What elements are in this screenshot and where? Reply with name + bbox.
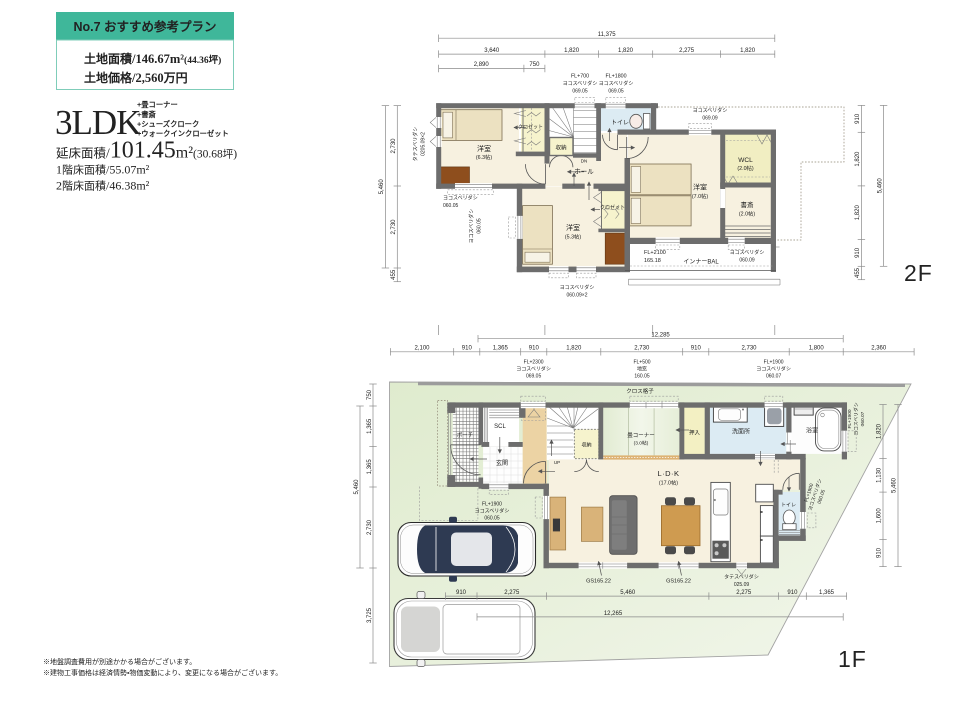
- svg-text:+畳コーナー: +畳コーナー: [137, 100, 178, 109]
- svg-text:910: 910: [456, 590, 467, 596]
- svg-text:ヨコスベリダシ: ヨコスベリダシ: [599, 80, 634, 87]
- svg-text:069.05: 069.05: [526, 373, 542, 379]
- svg-text:DN: DN: [581, 159, 588, 164]
- svg-text:910: 910: [691, 346, 702, 352]
- svg-text:910: 910: [529, 346, 540, 352]
- svg-text:5,460: 5,460: [620, 590, 636, 596]
- svg-text:1,820: 1,820: [855, 151, 861, 167]
- svg-text:0205.09×2: 0205.09×2: [421, 132, 427, 156]
- svg-text:GS165.22: GS165.22: [666, 579, 691, 585]
- svg-text:910: 910: [855, 113, 861, 124]
- svg-text:洋室: 洋室: [477, 144, 491, 153]
- svg-text:UP: UP: [554, 460, 560, 465]
- svg-text:ポーチ: ポーチ: [457, 432, 474, 439]
- svg-text:910: 910: [462, 346, 473, 352]
- svg-text:ヨコスベリダシ: ヨコスベリダシ: [443, 195, 478, 202]
- svg-text:1,820: 1,820: [740, 48, 756, 54]
- svg-text:ヨコスベリダシ: ヨコスベリダシ: [560, 284, 595, 291]
- svg-text:SCL: SCL: [494, 424, 506, 430]
- svg-text:トイレ: トイレ: [611, 121, 629, 127]
- svg-text:2,275: 2,275: [736, 590, 752, 596]
- svg-text:(2.0帖): (2.0帖): [737, 164, 753, 172]
- svg-text:クロゼット: クロゼット: [518, 124, 543, 131]
- svg-text:WCL: WCL: [738, 157, 753, 164]
- svg-text:L·D·K: L·D·K: [657, 469, 679, 478]
- svg-text:ヨコスベリダシ: ヨコスベリダシ: [693, 107, 728, 114]
- svg-text:2,100: 2,100: [414, 346, 430, 352]
- svg-text:1,800: 1,800: [809, 346, 825, 352]
- svg-text:トイレ: トイレ: [781, 503, 796, 509]
- svg-text:※建物工事価格は経済情勢・物価変動により、変更になる場合がご: ※建物工事価格は経済情勢・物価変動により、変更になる場合がございます。: [43, 668, 282, 677]
- svg-text:1F: 1F: [838, 646, 867, 672]
- svg-text:(2.0帖): (2.0帖): [739, 210, 755, 218]
- svg-text:2,360: 2,360: [871, 346, 887, 352]
- svg-text:069.09: 069.09: [702, 116, 718, 122]
- svg-text:165.18: 165.18: [644, 258, 661, 264]
- svg-text:1階床面積/55.07m²: 1階床面積/55.07m²: [56, 163, 150, 177]
- svg-text:※地盤調査費用が別途かかる場合がございます。: ※地盤調査費用が別途かかる場合がございます。: [43, 657, 196, 666]
- svg-text:(5.3帖): (5.3帖): [565, 233, 581, 241]
- svg-text:収納: 収納: [555, 144, 567, 152]
- svg-text:GS165.22: GS165.22: [586, 579, 611, 585]
- svg-text:3,640: 3,640: [484, 48, 500, 54]
- svg-text:1,365: 1,365: [493, 346, 509, 352]
- svg-text:ヨコスベリダシ: ヨコスベリダシ: [468, 209, 475, 244]
- svg-text:1,130: 1,130: [877, 467, 883, 483]
- svg-text:2,275: 2,275: [504, 590, 520, 596]
- svg-text:060.05: 060.05: [443, 203, 459, 209]
- svg-text:ヨコスベリダシ: ヨコスベリダシ: [475, 508, 510, 515]
- svg-text:収納: 収納: [581, 442, 591, 449]
- svg-text:2,730: 2,730: [634, 346, 650, 352]
- svg-text:ヨコスベリダシ: ヨコスベリダシ: [756, 365, 791, 372]
- svg-text:タテスベリダシ: タテスベリダシ: [724, 574, 759, 581]
- svg-text:5,460: 5,460: [354, 479, 360, 495]
- svg-text:FL+2300: FL+2300: [524, 359, 544, 365]
- svg-text:No.7 おすすめ参考プラン: No.7 おすすめ参考プラン: [73, 19, 216, 34]
- svg-text:3,725: 3,725: [367, 607, 373, 623]
- svg-text:タテスベリダシ: タテスベリダシ: [412, 127, 419, 162]
- svg-text:910: 910: [855, 247, 861, 258]
- svg-text:060.05: 060.05: [477, 218, 483, 234]
- svg-text:2,275: 2,275: [679, 48, 695, 54]
- svg-text:ヨコスベリダシ: ヨコスベリダシ: [516, 365, 551, 372]
- svg-text:1,820: 1,820: [877, 423, 883, 439]
- svg-text:160.05: 160.05: [634, 373, 650, 379]
- svg-text:洋室: 洋室: [566, 223, 580, 232]
- svg-text:2,730: 2,730: [391, 219, 397, 235]
- svg-text:インナーBAL: インナーBAL: [683, 259, 719, 266]
- svg-text:060.07: 060.07: [860, 411, 866, 426]
- svg-text:060.05: 060.05: [484, 516, 500, 522]
- svg-text:1,600: 1,600: [877, 508, 883, 524]
- svg-text:1,820: 1,820: [855, 205, 861, 221]
- svg-text:455: 455: [391, 269, 397, 280]
- svg-text:1,820: 1,820: [564, 48, 580, 54]
- svg-text:玄関: 玄関: [496, 459, 508, 467]
- svg-text:750: 750: [529, 62, 540, 68]
- svg-text:060.09×2: 060.09×2: [567, 293, 588, 299]
- svg-text:5,460: 5,460: [877, 178, 883, 194]
- svg-text:ホール: ホール: [574, 168, 594, 176]
- svg-text:11,375: 11,375: [598, 32, 617, 38]
- svg-text:ヨコスベリダシ: ヨコスベリダシ: [563, 80, 598, 87]
- svg-text:FL+1900: FL+1900: [482, 502, 502, 508]
- svg-text:(17.0帖): (17.0帖): [659, 479, 678, 487]
- svg-text:3LDK: 3LDK: [55, 103, 141, 142]
- svg-text:FL+1900: FL+1900: [847, 409, 853, 428]
- svg-text:洗面所: 洗面所: [732, 428, 750, 436]
- svg-text:069.05: 069.05: [608, 89, 624, 95]
- svg-text:025.09: 025.09: [734, 582, 750, 588]
- svg-text:750: 750: [367, 389, 373, 400]
- svg-text:ヨコスベリダシ: ヨコスベリダシ: [853, 402, 860, 436]
- svg-text:1,365: 1,365: [367, 459, 373, 475]
- svg-text:土地価格/2,560万円: 土地価格/2,560万円: [84, 70, 188, 85]
- svg-text:455: 455: [855, 267, 861, 278]
- svg-text:ヨコスベリダシ: ヨコスベリダシ: [730, 249, 765, 256]
- svg-text:畳コーナー: 畳コーナー: [627, 432, 655, 439]
- svg-text:12,265: 12,265: [604, 611, 623, 617]
- svg-text:(3.0帖): (3.0帖): [634, 440, 649, 447]
- svg-text:2,730: 2,730: [391, 138, 397, 154]
- svg-text:5,460: 5,460: [892, 477, 898, 493]
- svg-text:910: 910: [787, 590, 798, 596]
- svg-text:クロス格子: クロス格子: [626, 387, 654, 395]
- svg-text:1,365: 1,365: [367, 418, 373, 434]
- svg-text:クロゼット: クロゼット: [600, 204, 625, 211]
- svg-text:+シューズクローク: +シューズクローク: [137, 120, 199, 129]
- svg-text:FL+700: FL+700: [571, 74, 589, 80]
- svg-text:+書斎: +書斎: [137, 110, 157, 119]
- svg-text:書斎: 書斎: [741, 200, 755, 209]
- svg-text:060.09: 060.09: [739, 258, 755, 264]
- svg-text:069.05: 069.05: [572, 89, 588, 95]
- svg-text:910: 910: [877, 547, 883, 558]
- svg-text:060.07: 060.07: [766, 373, 782, 379]
- svg-text:(6.3帖): (6.3帖): [476, 153, 492, 161]
- svg-text:洋室: 洋室: [693, 183, 707, 192]
- svg-text:押入: 押入: [689, 429, 701, 437]
- svg-text:浴室: 浴室: [806, 427, 818, 435]
- svg-text:2,730: 2,730: [741, 346, 757, 352]
- svg-text:地窓: 地窓: [637, 365, 647, 372]
- svg-text:1,365: 1,365: [819, 590, 835, 596]
- svg-text:FL+500: FL+500: [633, 359, 650, 365]
- svg-text:5,460: 5,460: [379, 179, 385, 195]
- svg-text:(7.0帖): (7.0帖): [692, 192, 708, 200]
- svg-text:2,730: 2,730: [367, 519, 373, 535]
- svg-text:FL+2100: FL+2100: [644, 250, 666, 256]
- svg-text:FL+1800: FL+1800: [605, 74, 626, 80]
- svg-text:2,890: 2,890: [474, 62, 490, 68]
- svg-text:12,285: 12,285: [651, 333, 670, 339]
- svg-text:FL+1900: FL+1900: [764, 359, 784, 365]
- svg-text:2F: 2F: [904, 260, 933, 286]
- svg-text:2階床面積/46.38m²: 2階床面積/46.38m²: [56, 179, 150, 193]
- svg-text:1,820: 1,820: [566, 346, 582, 352]
- svg-text:1,820: 1,820: [618, 48, 634, 54]
